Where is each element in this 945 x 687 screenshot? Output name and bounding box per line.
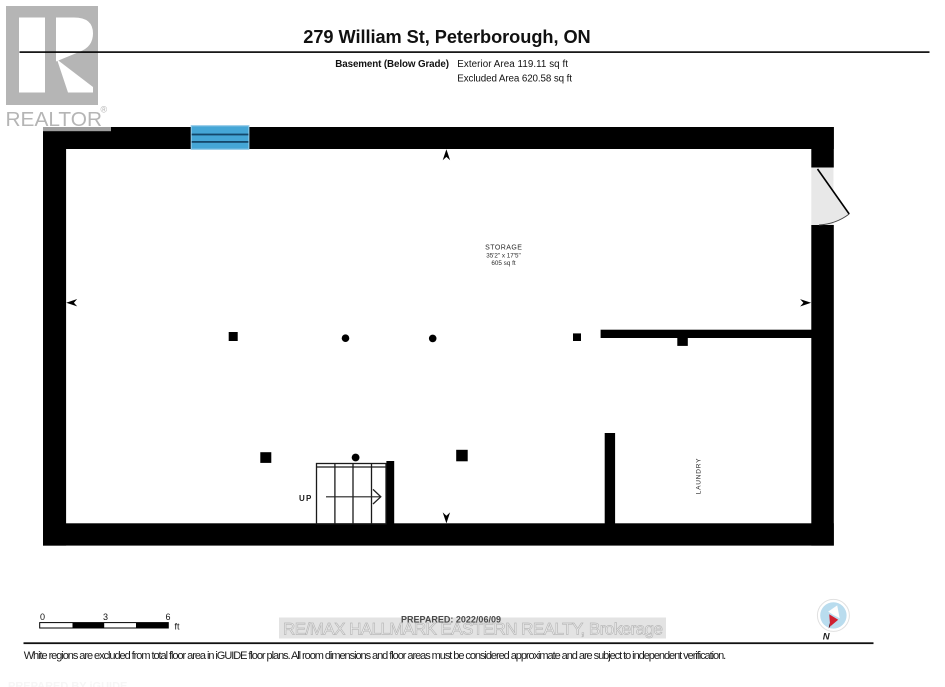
svg-text:Basement (Below Grade): Basement (Below Grade) (335, 59, 449, 70)
svg-text:35'2" x 17'5": 35'2" x 17'5" (486, 253, 521, 260)
svg-text:605 sq ft: 605 sq ft (491, 260, 515, 267)
svg-text:6: 6 (165, 612, 170, 622)
svg-text:ft: ft (175, 622, 181, 632)
svg-text:REALTOR: REALTOR (6, 108, 103, 131)
svg-text:3: 3 (103, 612, 108, 622)
svg-text:N: N (823, 631, 831, 642)
svg-text:®: ® (101, 105, 108, 115)
svg-text:White regions are excluded fro: White regions are excluded from total fl… (24, 650, 726, 662)
svg-text:UP: UP (299, 494, 313, 503)
svg-text:Excluded Area 620.58 sq ft: Excluded Area 620.58 sq ft (457, 74, 572, 85)
svg-text:LAUNDRY: LAUNDRY (696, 458, 703, 495)
svg-text:0: 0 (40, 612, 45, 622)
svg-text:Exterior Area 119.11 sq ft: Exterior Area 119.11 sq ft (457, 59, 568, 70)
svg-text:279 William St, Peterborough,: 279 William St, Peterborough, ON (303, 27, 590, 47)
svg-text:PREPARED BY iGUIDE: PREPARED BY iGUIDE (8, 681, 127, 687)
svg-text:PREPARED: 2022/06/09: PREPARED: 2022/06/09 (401, 615, 501, 625)
svg-text:STORAGE: STORAGE (485, 245, 522, 252)
